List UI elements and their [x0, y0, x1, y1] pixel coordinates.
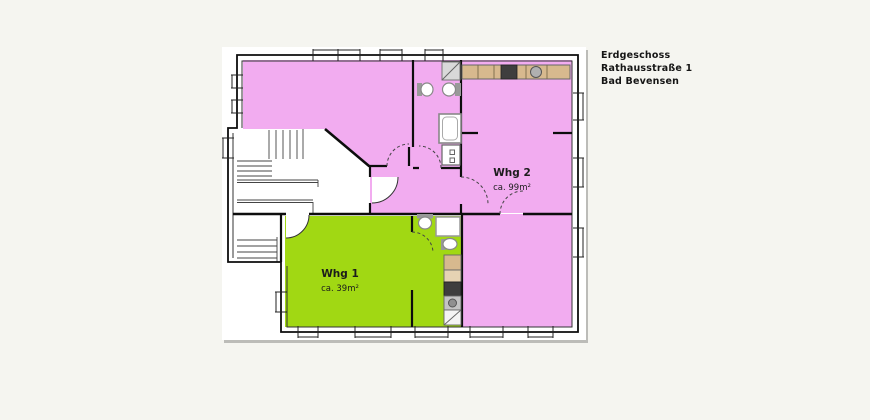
- whg2-label: Whg 2: [493, 167, 531, 179]
- title-block: Erdgeschoss Rathausstraße 1 Bad Bevensen: [601, 49, 771, 88]
- stove-icon: [501, 65, 517, 79]
- entrance-steps: [237, 237, 277, 262]
- kitchen-counter: [462, 65, 570, 79]
- title-city: Bad Bevensen: [601, 75, 771, 88]
- stove-icon: [444, 282, 461, 296]
- kitchenette-whg1: [444, 255, 461, 325]
- staircase: [237, 129, 318, 214]
- kitchen-sink-icon: [449, 299, 457, 307]
- title-street: Rathausstraße 1: [601, 62, 771, 75]
- kitchen-sink-icon: [531, 67, 542, 78]
- whg1-label: Whg 1: [321, 268, 359, 280]
- title-floor: Erdgeschoss: [601, 49, 771, 62]
- whg2-area-label: ca. 99m²: [493, 183, 531, 193]
- shower-tray-icon: [436, 217, 460, 236]
- whg1-area-label: ca. 39m²: [321, 284, 359, 294]
